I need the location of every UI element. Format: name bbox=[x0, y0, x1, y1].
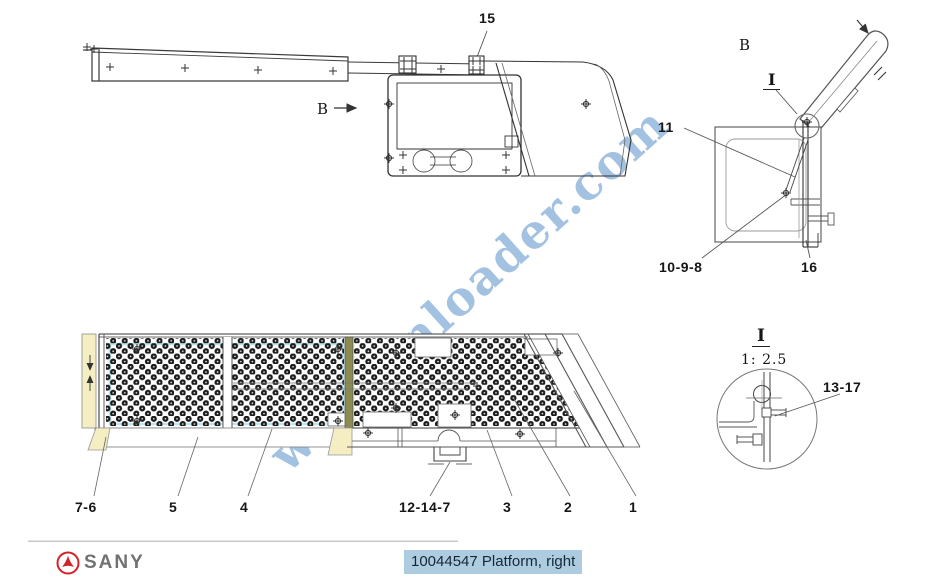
part-title: 10044547 Platform, right bbox=[404, 550, 582, 574]
technical-drawing bbox=[0, 0, 932, 579]
callout-10-9-8: 10-9-8 bbox=[659, 259, 702, 275]
callout-2: 2 bbox=[564, 499, 572, 515]
callout-16: 16 bbox=[801, 259, 818, 275]
detail-i-ref: I bbox=[752, 326, 770, 347]
callout-11: 11 bbox=[658, 119, 674, 135]
callout-4: 4 bbox=[240, 499, 248, 515]
callout-5: 5 bbox=[169, 499, 177, 515]
detail-i-scale: 1: 2.5 bbox=[741, 352, 787, 368]
callout-15: 15 bbox=[479, 10, 496, 26]
footer-divider-line bbox=[28, 541, 458, 542]
callout-7-6: 7-6 bbox=[75, 499, 97, 515]
sany-logo-icon bbox=[55, 550, 81, 576]
callout-12-14-7: 12-14-7 bbox=[399, 499, 451, 515]
view-b-label: B bbox=[739, 36, 750, 54]
callout-3: 3 bbox=[503, 499, 511, 515]
parts-diagram-page: www.cnloader.com bbox=[0, 0, 932, 579]
callout-13-17: 13-17 bbox=[823, 379, 861, 395]
detail-i-marker: I bbox=[763, 70, 780, 90]
section-label-b: B bbox=[317, 100, 328, 118]
callout-1: 1 bbox=[629, 499, 637, 515]
brand-name: SANY bbox=[84, 552, 145, 574]
view-side-platform bbox=[384, 31, 631, 176]
view-b bbox=[684, 20, 888, 258]
view-top-platform bbox=[82, 334, 640, 496]
